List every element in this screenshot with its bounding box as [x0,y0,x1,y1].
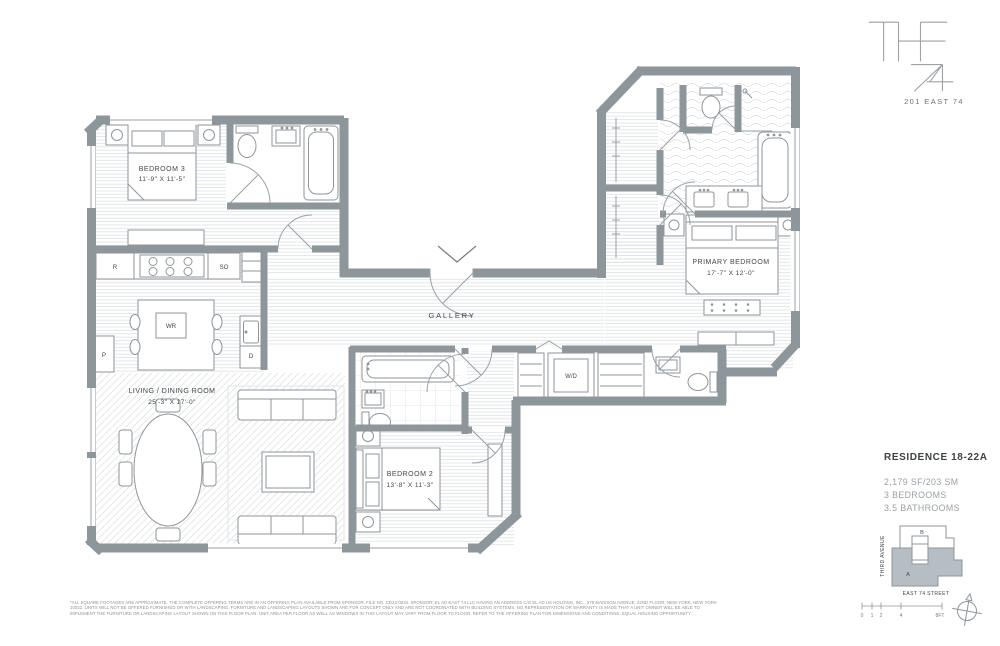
dresser-icon [698,332,774,345]
sink-icon [656,357,680,373]
scale-bar-icon: 0 1 2 4 8FT [858,600,954,620]
key-map-icon: B A THIRD AVENUE EAST 74 STREET [874,522,970,598]
third-avenue-label: THIRD AVENUE [880,535,886,577]
building-core [912,544,928,560]
unit-a-label: A [906,572,910,578]
legal-disclaimer: *ALL SQUARE FOOTAGES ARE APPROXIMATE. TH… [70,600,748,616]
residence-area: 2,179 SF/203 SM [884,476,998,489]
closet-shelves-icon [598,353,644,397]
bedroom2-name: BEDROOM 2 [387,471,434,478]
cooktop-icon [140,255,204,277]
bedroom3-name: BEDROOM 3 [139,166,186,173]
dresser-icon [128,230,204,245]
toilet-icon [688,372,717,392]
sink-icon [272,126,300,146]
scale-tick-1: 1 [871,613,874,619]
building-logo: THE [864,12,966,92]
residence-bedrooms: 3 BEDROOMS [884,489,998,502]
toilet-icon [236,126,258,158]
scale-bar: 0 1 2 4 8FT [858,600,954,620]
bedroom3-dims: 11'-9" X 11'-5" [139,176,186,183]
linen-closet-icon [518,353,544,397]
living-name: LIVING / DINING ROOM [128,388,215,395]
primary-dims: 17'-7" X 12'-0" [707,270,755,277]
speed-oven-label: SO [220,264,229,271]
residence-bathrooms: 3.5 BATHROOMS [884,502,998,515]
residence-title: RESIDENCE 18-22A [884,452,998,463]
dishwasher-label: D [249,353,254,360]
scale-tick-8ft: 8FT [936,613,945,619]
bedroom2-dims: 13'-8" X 11'-3" [386,482,433,489]
building-address: 201 EAST 74 [850,97,970,106]
bench-icon [704,300,760,315]
floorplan-page: BEDROOM 3 11'-9" X 11'-5" LIVING / DININ… [0,0,1000,646]
gallery-name: GALLERY [428,311,475,320]
wine-ref-label: WR [166,323,177,330]
scale-tick-2: 2 [880,613,883,619]
bathtub-icon [758,132,792,208]
dresser-icon [488,444,502,516]
washer-dryer-label: W/D [565,374,577,380]
double-vanity-icon [686,186,762,212]
bathtub-icon [304,126,338,200]
primary-name: PRIMARY BEDROOM [692,259,769,266]
the-74-logo-icon: THE [864,12,966,92]
scale-tick-0: 0 [861,613,864,619]
kitchen-sink-icon [244,321,259,343]
disclaimer-line-3: IMPLEMENT THE FURNITURE OR LANDSCAPING L… [70,611,748,616]
refrigerator-label: R [113,264,118,271]
residence-info-panel: RESIDENCE 18-22A 2,179 SF/203 SM 3 BEDRO… [884,452,998,515]
compass-icon [950,592,984,626]
entry-marker-icon [438,246,476,262]
living-dims: 25'-3" X 17'-0" [148,399,196,406]
disclaimer-line-2: 10022. UNITS WILL NOT BE OFFERED FURNISH… [70,605,748,610]
building-key-map: B A THIRD AVENUE EAST 74 STREET [874,522,970,598]
scale-tick-4: 4 [900,613,903,619]
bathtub-icon [362,356,454,382]
pantry-label: P [102,352,106,359]
east-74-street-label: EAST 74 STREET [903,591,950,597]
island-icon [130,300,222,370]
unit-b-label: B [920,530,924,536]
sink-icon [362,390,384,408]
